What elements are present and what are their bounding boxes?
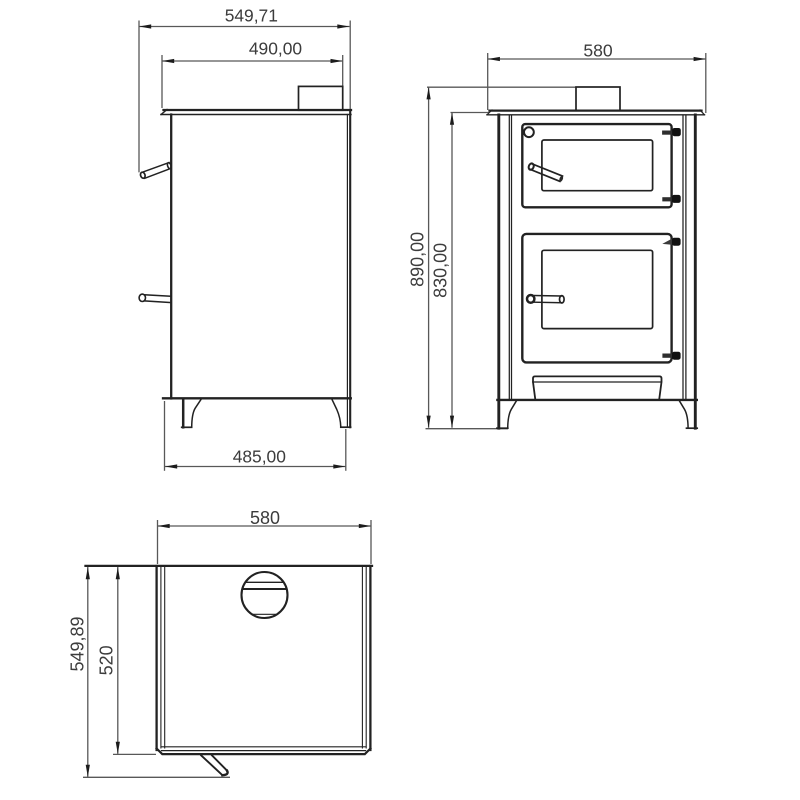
svg-text:830,00: 830,00 [430,243,450,298]
svg-text:580: 580 [583,40,613,60]
svg-text:549,71: 549,71 [225,5,278,25]
svg-text:520: 520 [96,645,116,675]
svg-text:890,00: 890,00 [407,232,427,287]
svg-text:549,89: 549,89 [67,616,87,671]
svg-text:485,00: 485,00 [233,446,286,466]
svg-text:490,00: 490,00 [249,39,302,59]
svg-text:580: 580 [250,508,280,528]
